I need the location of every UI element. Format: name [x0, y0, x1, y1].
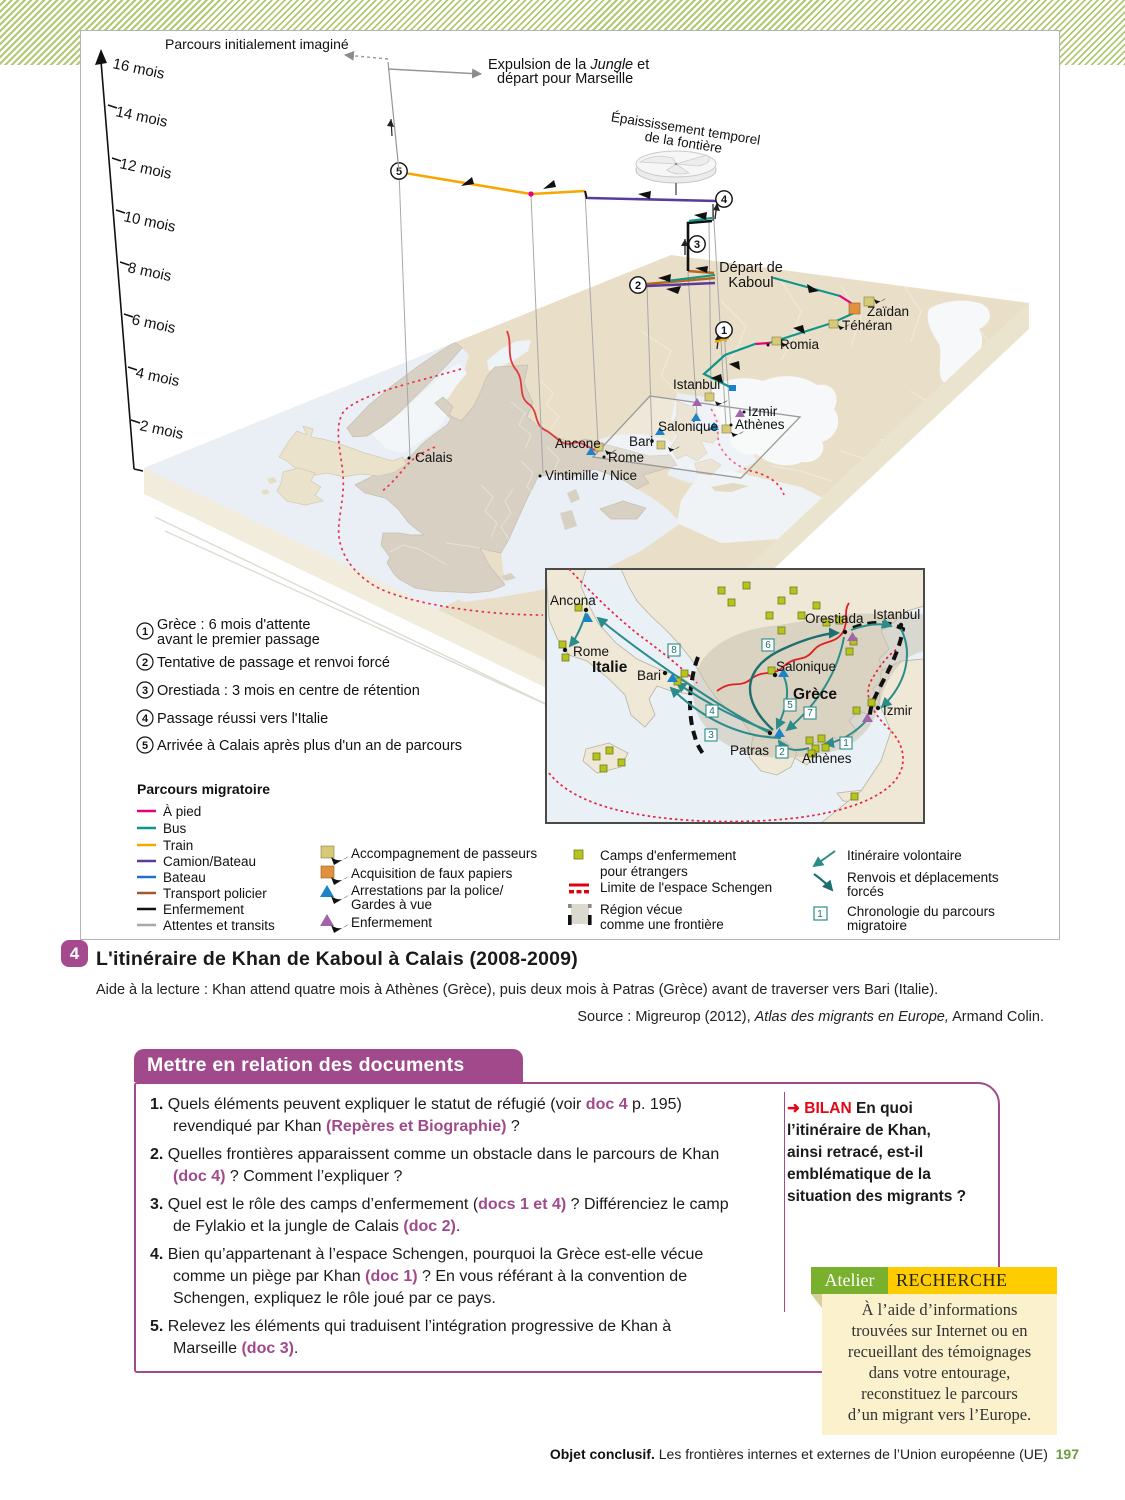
- svg-text:Arrivée à Calais après plus d': Arrivée à Calais après plus d'un an de p…: [157, 738, 462, 754]
- svg-text:2 mois: 2 mois: [138, 417, 185, 443]
- svg-text:comme une frontière: comme une frontière: [600, 917, 724, 932]
- svg-text:Ancone: Ancone: [555, 436, 601, 451]
- svg-text:Romia: Romia: [780, 337, 820, 352]
- svg-text:Enfermement: Enfermement: [351, 915, 432, 930]
- svg-text:1: 1: [142, 626, 148, 638]
- svg-text:14 mois: 14 mois: [114, 103, 169, 131]
- svg-text:Arrestations par la police/: Arrestations par la police/: [351, 883, 504, 898]
- svg-text:Bari: Bari: [629, 434, 653, 449]
- svg-text:Chronologie du parcours: Chronologie du parcours: [847, 904, 995, 919]
- svg-text:Patras: Patras: [730, 743, 769, 758]
- svg-text:Itinéraire volontaire: Itinéraire volontaire: [847, 848, 962, 863]
- svg-text:2: 2: [635, 280, 641, 292]
- svg-text:Athènes: Athènes: [735, 417, 785, 432]
- svg-text:Istanbul: Istanbul: [673, 377, 720, 392]
- svg-text:1: 1: [721, 325, 727, 337]
- svg-text:départ pour Marseille: départ pour Marseille: [497, 71, 633, 87]
- svg-text:Parcours migratoire: Parcours migratoire: [137, 781, 270, 797]
- svg-text:7: 7: [807, 708, 813, 719]
- svg-text:2: 2: [142, 657, 148, 669]
- svg-text:Orestiada : 3 mois en centre d: Orestiada : 3 mois en centre de rétentio…: [157, 683, 420, 699]
- svg-text:4: 4: [721, 194, 728, 206]
- svg-text:Parcours initialement imaginé: Parcours initialement imaginé: [165, 36, 349, 52]
- svg-text:16 mois: 16 mois: [111, 55, 166, 83]
- svg-text:Rome: Rome: [608, 450, 644, 465]
- svg-text:Grèce : 6 mois d'attente: Grèce : 6 mois d'attente: [157, 617, 310, 633]
- svg-text:10 mois: 10 mois: [122, 208, 177, 236]
- svg-text:Salonique: Salonique: [776, 659, 836, 674]
- svg-text:6 mois: 6 mois: [130, 311, 177, 337]
- svg-text:migratoire: migratoire: [847, 918, 907, 933]
- svg-text:Train: Train: [163, 838, 193, 853]
- svg-text:Bari: Bari: [637, 668, 661, 683]
- svg-text:Région vécue: Région vécue: [600, 902, 683, 917]
- svg-text:Tentative de passage et renvoi: Tentative de passage et renvoi forcé: [157, 655, 390, 671]
- svg-text:4: 4: [709, 706, 715, 717]
- svg-text:8: 8: [671, 645, 677, 656]
- svg-text:Grèce: Grèce: [793, 686, 837, 703]
- svg-text:4: 4: [142, 713, 149, 725]
- svg-text:2: 2: [779, 747, 785, 758]
- svg-text:5: 5: [787, 700, 793, 711]
- svg-text:Départ de: Départ de: [719, 260, 783, 276]
- svg-text:8 mois: 8 mois: [126, 259, 173, 285]
- svg-text:Athènes: Athènes: [802, 751, 852, 766]
- svg-text:6: 6: [765, 640, 771, 651]
- svg-text:Salonique: Salonique: [658, 419, 718, 434]
- svg-text:Camion/Bateau: Camion/Bateau: [163, 854, 256, 869]
- svg-text:1: 1: [817, 909, 823, 920]
- svg-text:Bateau: Bateau: [163, 870, 206, 885]
- svg-text:Ancona: Ancona: [550, 593, 596, 608]
- svg-text:Vintimille / Nice: Vintimille / Nice: [545, 468, 637, 483]
- svg-text:3: 3: [694, 239, 700, 251]
- svg-text:3: 3: [708, 730, 714, 741]
- svg-text:Izmir: Izmir: [883, 703, 913, 718]
- svg-text:Renvois et déplacements: Renvois et déplacements: [847, 870, 999, 885]
- svg-text:Limite de l'espace Schengen: Limite de l'espace Schengen: [600, 880, 772, 895]
- svg-text:Bus: Bus: [163, 821, 187, 836]
- svg-text:Passage réussi vers l'Italie: Passage réussi vers l'Italie: [157, 711, 328, 727]
- svg-text:À pied: À pied: [163, 804, 201, 819]
- svg-text:Istanbul: Istanbul: [873, 607, 920, 622]
- svg-text:Gardes à vue: Gardes à vue: [351, 897, 432, 912]
- svg-text:5: 5: [142, 740, 148, 752]
- svg-text:forcés: forcés: [847, 884, 884, 899]
- svg-text:Transport policier: Transport policier: [163, 886, 267, 901]
- svg-text:Rome: Rome: [573, 644, 609, 659]
- svg-text:3: 3: [142, 685, 148, 697]
- svg-text:Calais: Calais: [415, 450, 453, 465]
- svg-text:Acquisition de faux papiers: Acquisition de faux papiers: [351, 866, 513, 881]
- svg-text:Camps d'enfermement: Camps d'enfermement: [600, 848, 736, 863]
- svg-text:pour étrangers: pour étrangers: [600, 864, 688, 879]
- svg-text:Orestiada: Orestiada: [805, 611, 864, 626]
- svg-text:Kaboul: Kaboul: [728, 275, 773, 291]
- svg-text:Zaïdan: Zaïdan: [867, 304, 909, 319]
- svg-text:Attentes et transits: Attentes et transits: [163, 918, 275, 933]
- svg-text:Accompagnement de passeurs: Accompagnement de passeurs: [351, 846, 537, 861]
- svg-text:Enfermement: Enfermement: [163, 902, 244, 917]
- svg-text:1: 1: [843, 738, 849, 749]
- svg-text:Téhéran: Téhéran: [842, 318, 892, 333]
- svg-text:Italie: Italie: [592, 659, 628, 676]
- svg-text:avant le premier passage: avant le premier passage: [157, 632, 320, 648]
- svg-text:4 mois: 4 mois: [134, 364, 181, 390]
- svg-text:12 mois: 12 mois: [118, 155, 173, 183]
